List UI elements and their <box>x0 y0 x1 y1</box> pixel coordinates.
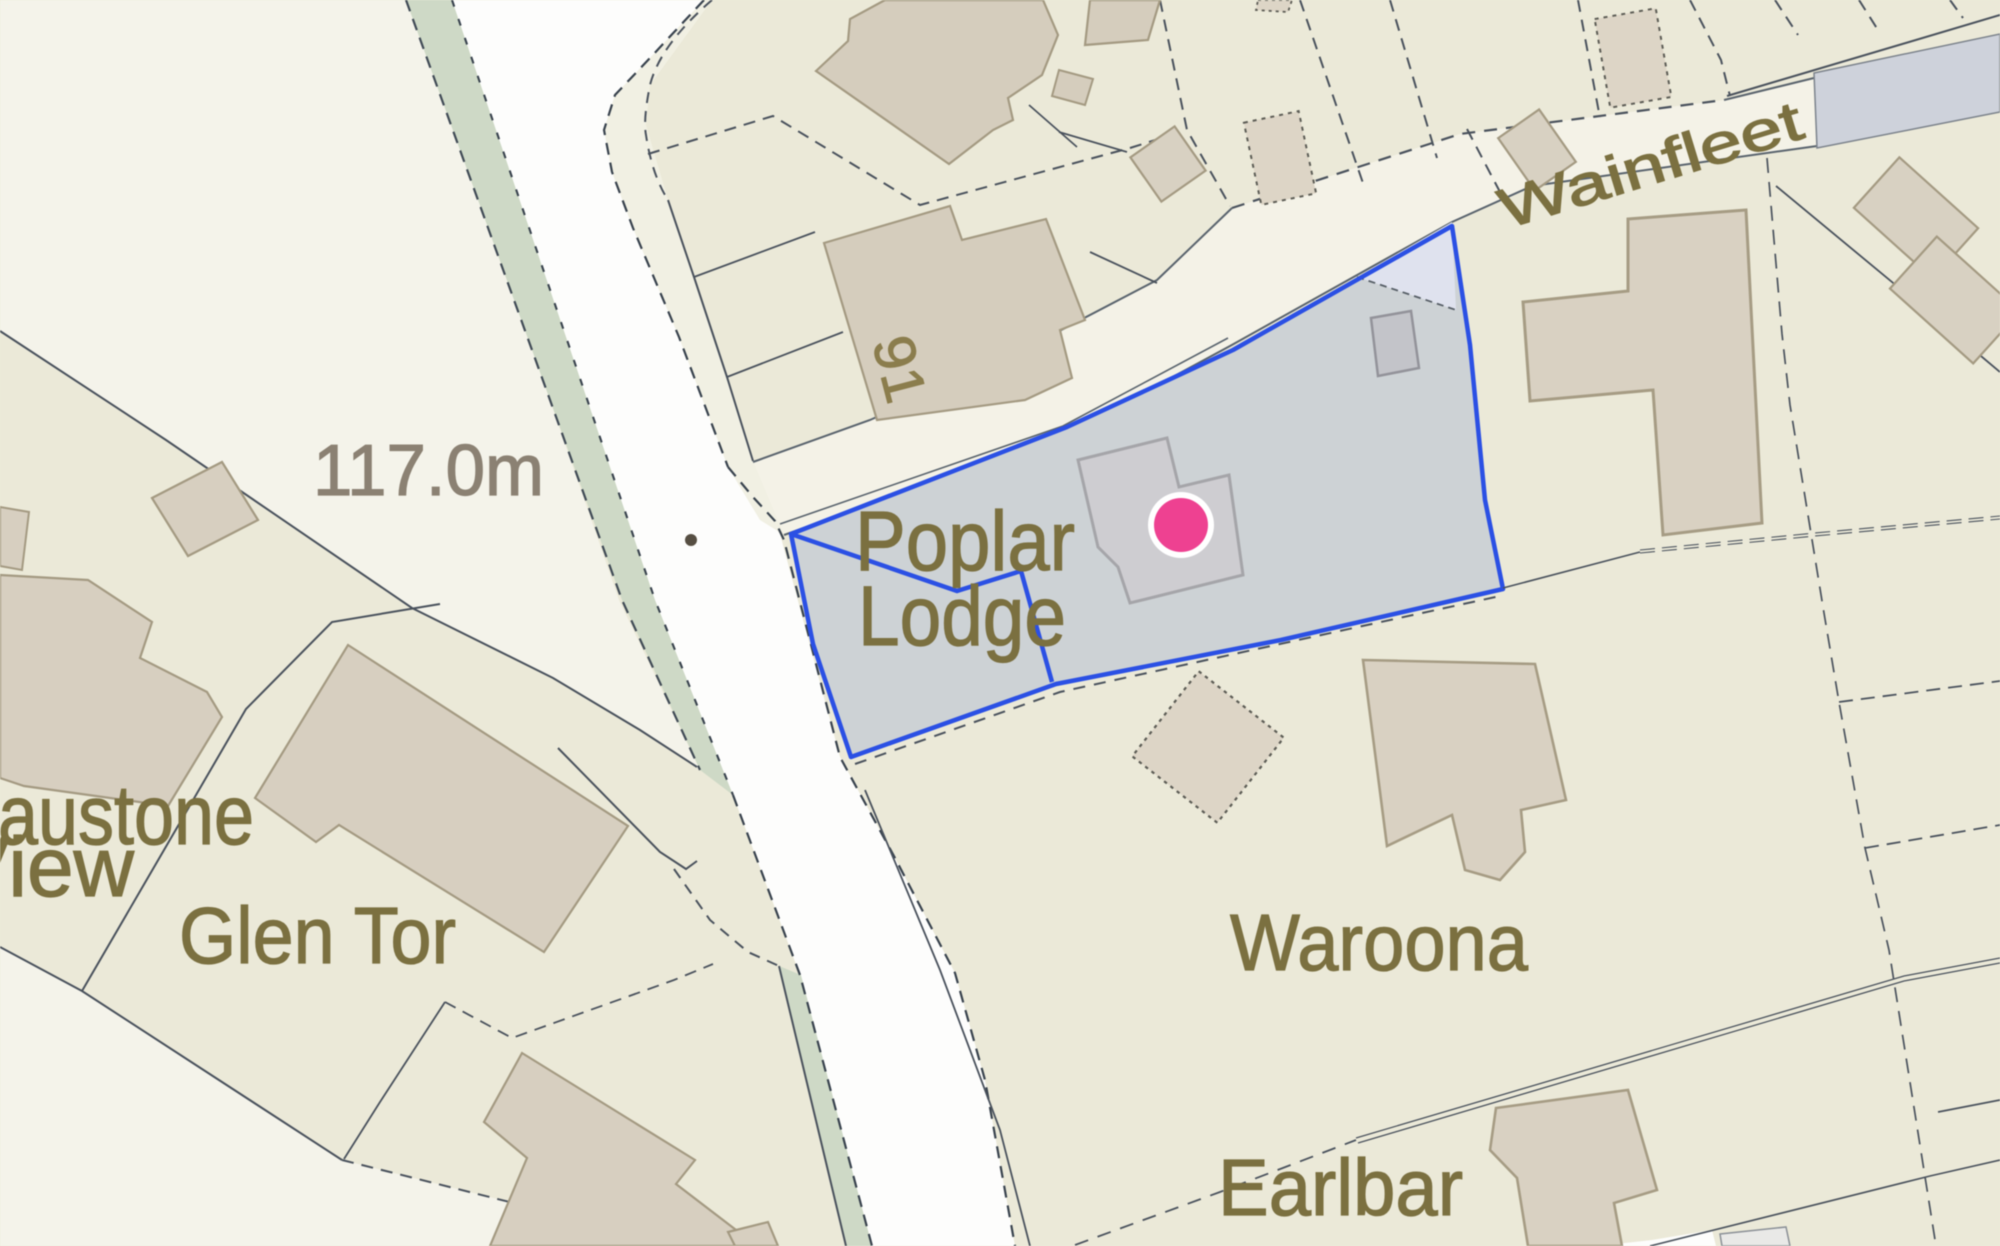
svg-text:Glen Tor: Glen Tor <box>179 891 456 980</box>
svg-text:View: View <box>0 820 134 914</box>
svg-text:Earlbar: Earlbar <box>1218 1143 1463 1232</box>
svg-text:Waroona: Waroona <box>1230 898 1528 987</box>
svg-text:Lodge: Lodge <box>858 569 1066 663</box>
svg-text:117.0m: 117.0m <box>313 431 544 511</box>
